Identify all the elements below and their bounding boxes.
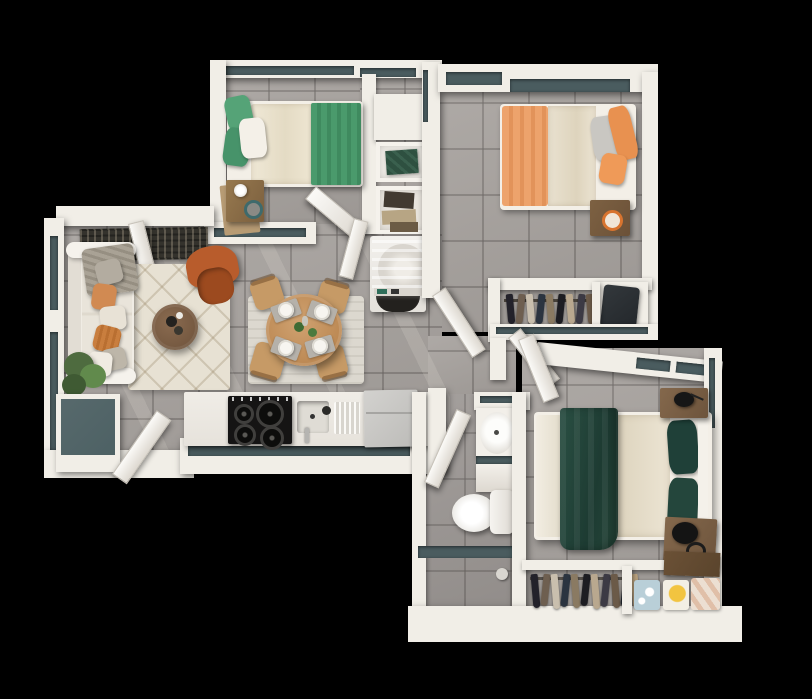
hanging-garment xyxy=(560,574,570,608)
vanity-cabinet xyxy=(476,464,514,492)
master-sheet-band xyxy=(536,415,562,537)
burner-small-2 xyxy=(234,424,256,446)
master-closet-divider xyxy=(622,566,632,614)
coffee-table-decor-bowl xyxy=(174,326,183,335)
master-wall-left xyxy=(512,392,526,614)
vanity-drain xyxy=(494,430,499,435)
plate-nw xyxy=(278,302,294,318)
hanging-garment xyxy=(550,574,560,609)
hanging-garment xyxy=(611,574,621,608)
hanging-garment xyxy=(600,574,610,608)
refrigerator xyxy=(364,390,419,448)
suitcase xyxy=(600,284,640,330)
desk-lamp xyxy=(234,184,247,197)
hanging-garment xyxy=(590,574,600,609)
hanging-clothes-orange-closet xyxy=(507,294,594,324)
coffee-table-decor-cup xyxy=(176,312,183,319)
centerpiece-plant-2 xyxy=(308,328,317,337)
master-pillow-1 xyxy=(666,419,700,475)
kitchen-faucet xyxy=(305,428,309,443)
refrigerator-seam xyxy=(366,412,416,414)
hanging-garment xyxy=(526,294,536,324)
stove-knobs xyxy=(232,397,288,401)
plate-sw xyxy=(278,340,294,356)
hanging-garment xyxy=(555,294,565,325)
floor-plan-render xyxy=(0,0,812,699)
hanging-garment xyxy=(580,574,590,607)
bed-green-blanket xyxy=(311,103,361,185)
bathroom-wall-left xyxy=(412,392,426,614)
folded-clothes-dark xyxy=(383,191,414,209)
bedroom-small-window-top-left xyxy=(226,66,354,75)
bottom-plinth xyxy=(408,606,742,642)
washer-louvers xyxy=(372,240,424,288)
storage-box-brown xyxy=(664,551,721,577)
master-green-throw xyxy=(560,408,618,550)
folded-linen-striped xyxy=(691,578,720,610)
hanging-garment xyxy=(571,574,581,608)
kitchen-window-strip xyxy=(188,446,410,456)
shower-knob xyxy=(496,568,508,580)
bedroom-orange-glass-left xyxy=(423,70,428,122)
folded-linen-yellow xyxy=(663,580,689,610)
burner-small-1 xyxy=(234,404,254,424)
bedroom-orange-window-2 xyxy=(510,79,630,92)
pillow-white xyxy=(238,117,268,159)
hanging-garment xyxy=(540,574,550,607)
floor-plant-leaf-3 xyxy=(62,374,86,396)
hanging-garment xyxy=(566,294,576,324)
hanging-garment xyxy=(531,574,541,608)
centerpiece-bottle xyxy=(302,316,308,326)
sink-drain xyxy=(310,414,315,419)
washer-button xyxy=(391,289,399,294)
hanging-garment xyxy=(535,294,545,325)
master-lamp-bottom xyxy=(672,522,698,544)
closet-orange-divider xyxy=(592,282,600,328)
hanging-garment xyxy=(575,294,585,325)
washer-display xyxy=(377,289,387,294)
desk-dish xyxy=(244,200,263,219)
bedroom-orange-window-1 xyxy=(446,72,502,85)
dish-rack xyxy=(334,402,360,434)
burner-large-1 xyxy=(256,400,284,428)
plate-ne xyxy=(314,304,330,320)
hanging-garment xyxy=(515,294,525,325)
master-window-top-1 xyxy=(636,357,671,371)
hanging-garment xyxy=(506,294,516,324)
living-window-left-1 xyxy=(50,236,58,310)
folded-towel-green xyxy=(385,149,419,175)
folded-clothes-brown xyxy=(390,222,418,232)
shower-partition xyxy=(418,546,516,558)
plate-se xyxy=(312,338,328,354)
nightstand-dish xyxy=(602,210,623,231)
burner-large-2 xyxy=(260,426,284,450)
orange-blanket xyxy=(502,106,548,206)
sink-soap-dot xyxy=(322,406,331,415)
coffee-table-decor-dark xyxy=(166,316,177,327)
hanging-garment xyxy=(546,294,556,324)
planter-cabinet-top xyxy=(61,399,115,455)
armchair xyxy=(183,242,245,312)
hall-wall-piece xyxy=(490,338,506,380)
orange-bed-duvet xyxy=(548,106,596,206)
folded-linen-blue xyxy=(634,580,660,610)
toilet-tank xyxy=(490,490,514,534)
